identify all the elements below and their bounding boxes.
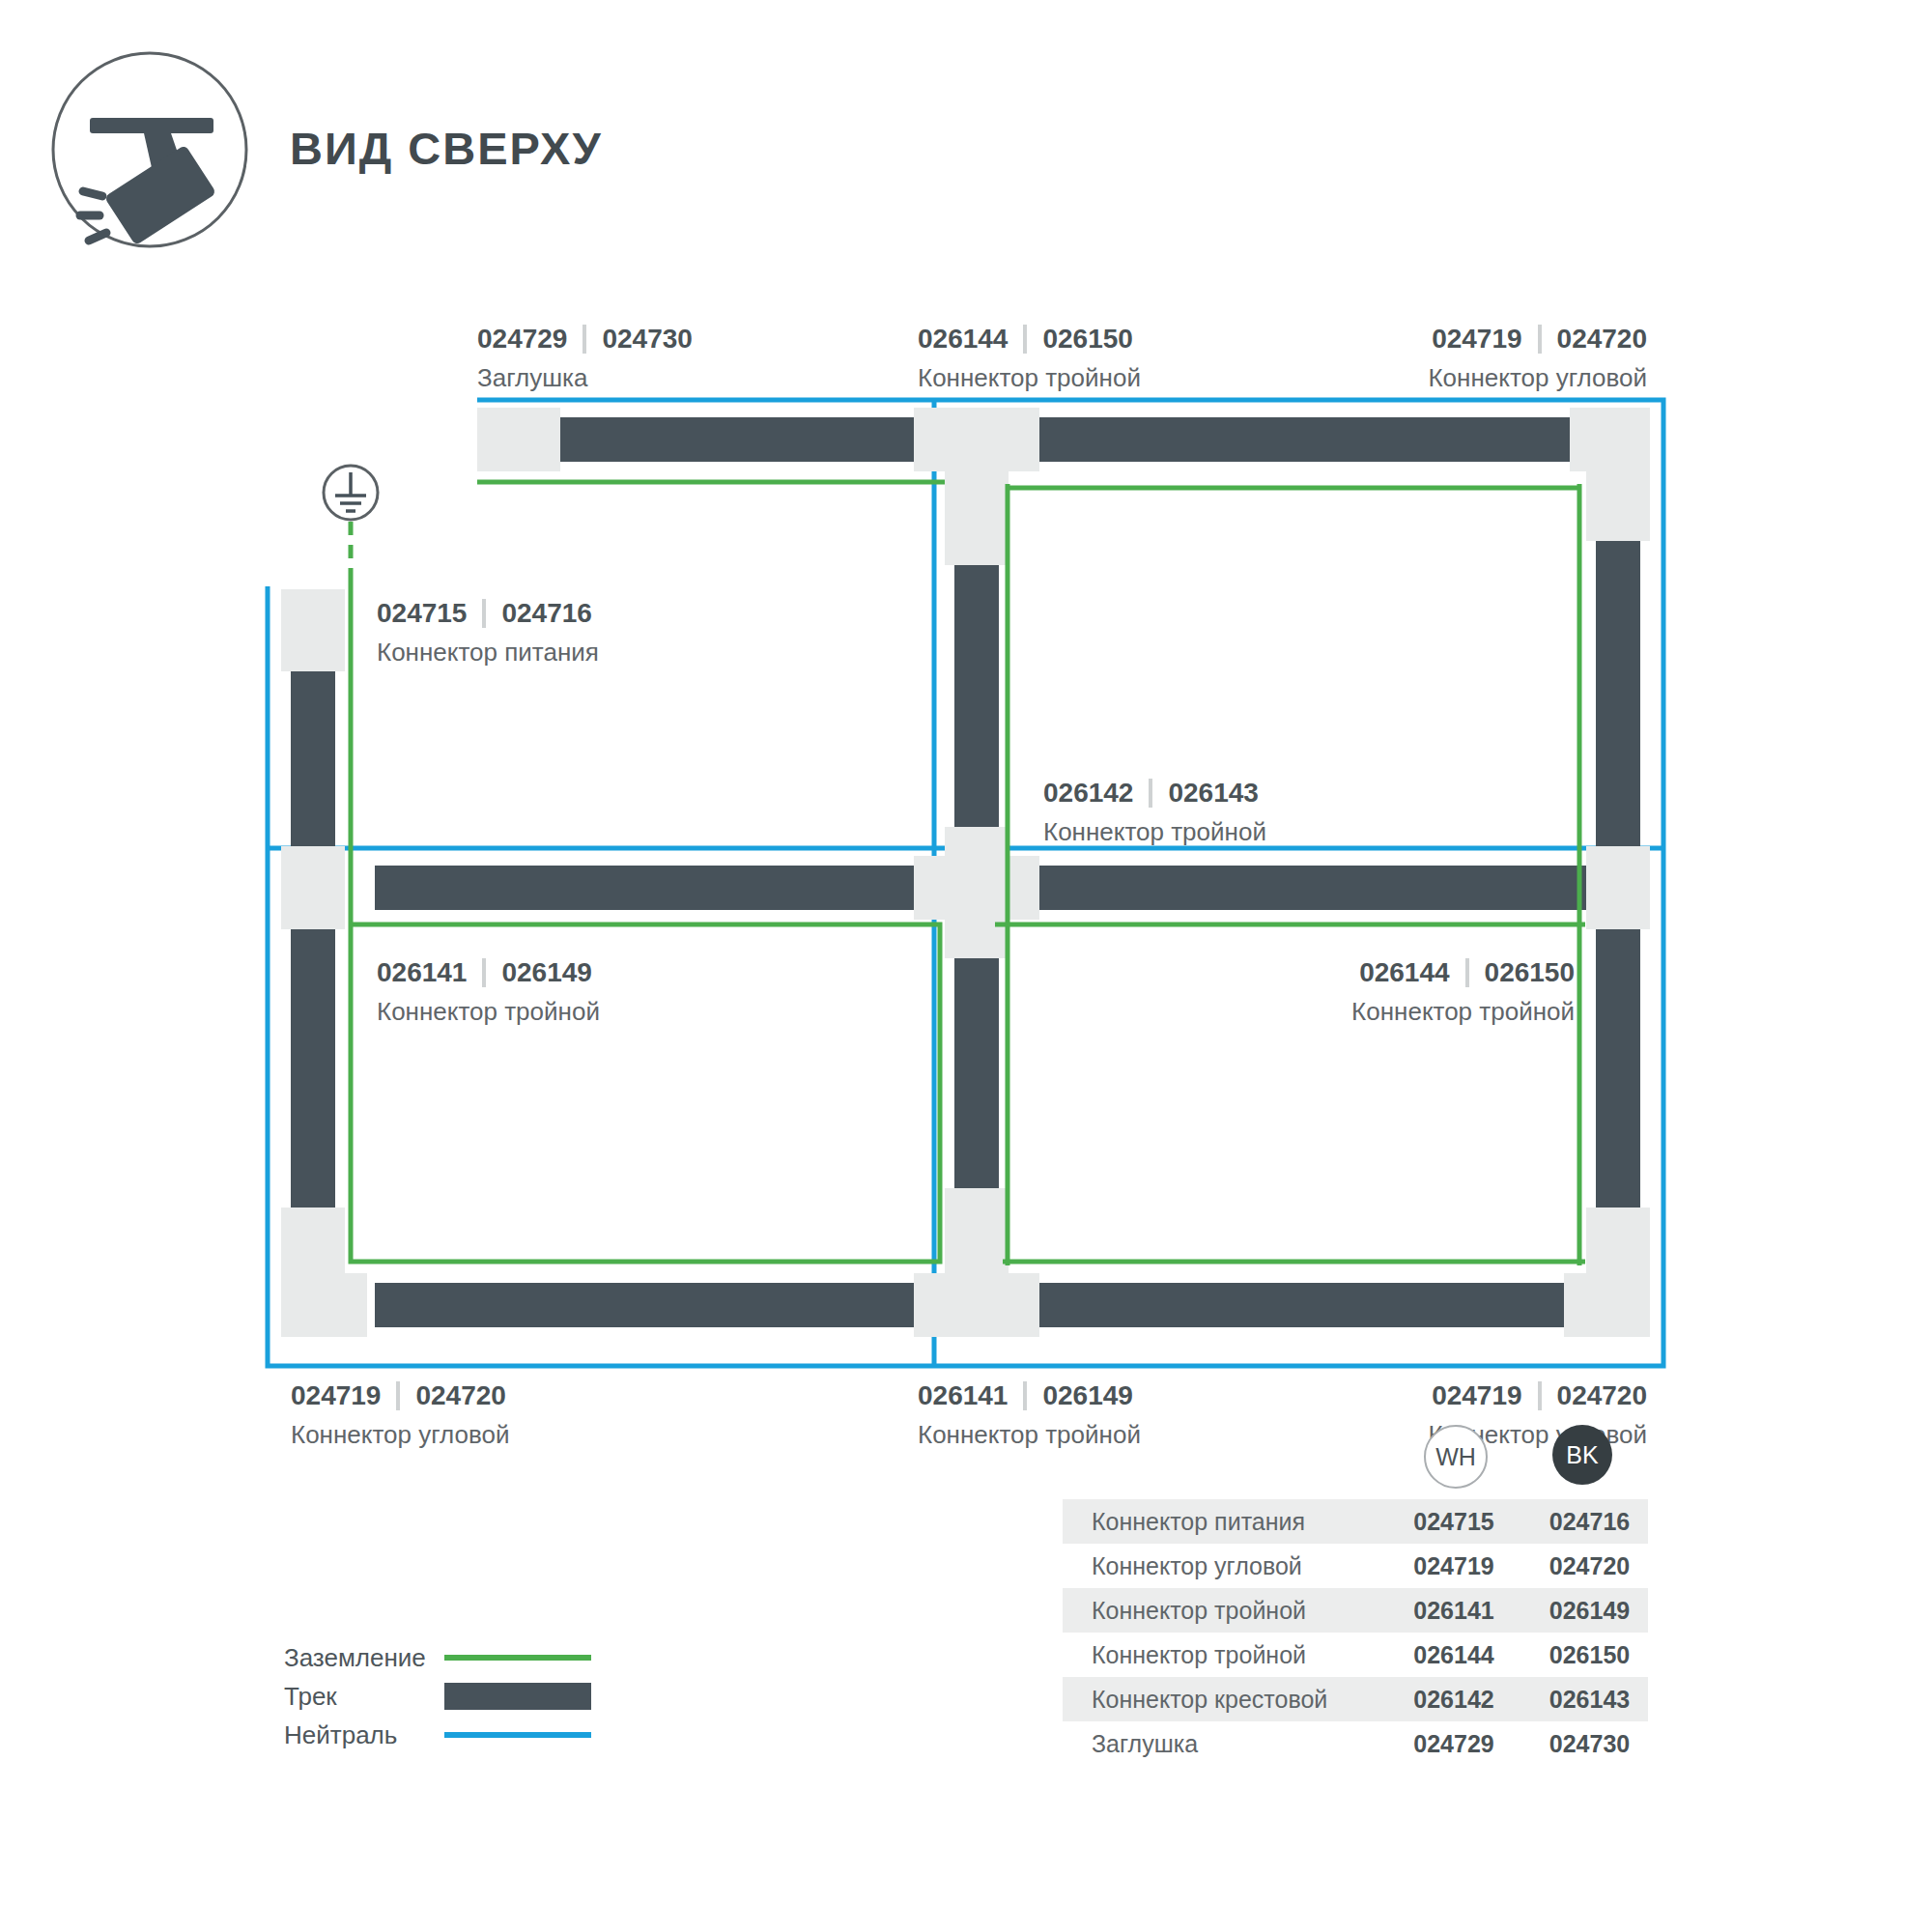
callout-corner-top-right: 024719024720 Коннектор угловой <box>1428 325 1647 392</box>
callout-corner-bottom-left: 024719024720 Коннектор угловой <box>291 1381 510 1449</box>
row-name: Заглушка <box>1063 1730 1377 1758</box>
track-spotlight-icon <box>53 53 246 246</box>
code-divider <box>582 325 586 354</box>
code-wh: 024719 <box>1432 326 1521 353</box>
part-codes: 024719024720 <box>291 1381 510 1410</box>
column-badge-black: BK <box>1552 1425 1612 1485</box>
part-name: Коннектор угловой <box>291 1421 510 1449</box>
code-divider <box>482 599 486 628</box>
row-name: Коннектор крестовой <box>1063 1686 1377 1714</box>
callout-t-connector-top: 026144026150 Коннектор тройной <box>918 325 1141 392</box>
part-codes: 024719024720 <box>1428 325 1647 354</box>
legend-label: Нейтраль <box>284 1720 444 1750</box>
part-name: Коннектор тройной <box>918 364 1141 392</box>
code-wh: 026144 <box>1359 959 1449 986</box>
part-name: Коннектор тройной <box>918 1421 1141 1449</box>
code-wh: 026141 <box>918 1382 1008 1409</box>
row-name: Коннектор угловой <box>1063 1552 1377 1580</box>
code-bk: 026143 <box>1168 780 1258 807</box>
row-code-wh: 024715 <box>1377 1508 1531 1536</box>
part-codes: 024715024716 <box>377 599 599 628</box>
ground-line-swatch <box>444 1655 591 1661</box>
code-divider <box>1149 779 1152 808</box>
code-divider <box>1023 1381 1027 1410</box>
row-code-bk: 024720 <box>1531 1552 1648 1580</box>
legend-item-neutral: Нейтраль <box>284 1721 591 1748</box>
row-code-wh: 024719 <box>1377 1552 1531 1580</box>
parts-table: Коннектор питания 024715 024716 Коннекто… <box>1063 1499 1648 1766</box>
legend-label: Трек <box>284 1682 444 1712</box>
row-code-bk: 026150 <box>1531 1641 1648 1669</box>
legend-item-ground: Заземление <box>284 1644 591 1671</box>
legend: Заземление Трек Нейтраль <box>284 1644 591 1748</box>
row-code-bk: 024730 <box>1531 1730 1648 1758</box>
code-bk: 026150 <box>1485 959 1575 986</box>
table-row: Коннектор крестовой 026142 026143 <box>1063 1677 1648 1721</box>
table-row: Заглушка 024729 024730 <box>1063 1721 1648 1766</box>
code-bk: 026149 <box>501 959 591 986</box>
part-codes: 024729024730 <box>477 325 693 354</box>
code-wh: 024719 <box>1432 1382 1521 1409</box>
row-code-bk: 026149 <box>1531 1597 1648 1625</box>
part-name: Коннектор тройной <box>1351 998 1575 1026</box>
part-name: Коннектор тройной <box>1043 818 1266 846</box>
code-bk: 024720 <box>1557 1382 1647 1409</box>
code-bk: 026149 <box>1042 1382 1132 1409</box>
legend-label: Заземление <box>284 1643 444 1673</box>
part-name: Коннектор питания <box>377 639 599 667</box>
table-row: Коннектор тройной 026141 026149 <box>1063 1588 1648 1633</box>
part-codes: 026142026143 <box>1043 779 1266 808</box>
row-code-wh: 026141 <box>1377 1597 1531 1625</box>
code-divider <box>396 1381 400 1410</box>
code-bk: 024720 <box>415 1382 505 1409</box>
row-code-wh: 026142 <box>1377 1686 1531 1714</box>
page: { "header": { "title": "ВИД СВЕРХУ", "ic… <box>0 0 1932 1932</box>
row-name: Коннектор питания <box>1063 1508 1377 1536</box>
code-bk: 024716 <box>501 600 591 627</box>
part-codes: 026144026150 <box>1351 958 1575 987</box>
table-row: Коннектор питания 024715 024716 <box>1063 1499 1648 1544</box>
code-divider <box>482 958 486 987</box>
part-name: Коннектор угловой <box>1428 364 1647 392</box>
track-bar-swatch <box>444 1683 591 1710</box>
callout-t-connector-bottom: 026141026149 Коннектор тройной <box>918 1381 1141 1449</box>
callout-end-cap-top: 024729024730 Заглушка <box>477 325 693 392</box>
row-code-bk: 026143 <box>1531 1686 1648 1714</box>
part-name: Коннектор тройной <box>377 998 600 1026</box>
code-bk: 026150 <box>1042 326 1132 353</box>
code-wh: 026144 <box>918 326 1008 353</box>
part-codes: 024719024720 <box>1428 1381 1647 1410</box>
callout-power-connector: 024715024716 Коннектор питания <box>377 599 599 667</box>
code-divider <box>1538 1381 1542 1410</box>
code-wh: 024715 <box>377 600 467 627</box>
part-codes: 026141026149 <box>918 1381 1141 1410</box>
code-divider <box>1023 325 1027 354</box>
row-name: Коннектор тройной <box>1063 1597 1377 1625</box>
code-divider <box>1538 325 1542 354</box>
table-row: Коннектор угловой 024719 024720 <box>1063 1544 1648 1588</box>
row-code-wh: 026144 <box>1377 1641 1531 1669</box>
legend-item-track: Трек <box>284 1683 591 1710</box>
row-code-wh: 024729 <box>1377 1730 1531 1758</box>
code-divider <box>1465 958 1469 987</box>
row-name: Коннектор тройной <box>1063 1641 1377 1669</box>
code-bk: 024720 <box>1557 326 1647 353</box>
part-name: Заглушка <box>477 364 693 392</box>
page-title: ВИД СВЕРХУ <box>290 122 603 175</box>
code-bk: 024730 <box>602 326 692 353</box>
part-codes: 026141026149 <box>377 958 600 987</box>
table-row: Коннектор тройной 026144 026150 <box>1063 1633 1648 1677</box>
row-code-bk: 024716 <box>1531 1508 1648 1536</box>
column-badge-white: WH <box>1424 1425 1488 1489</box>
code-wh: 024729 <box>477 326 567 353</box>
code-wh: 026142 <box>1043 780 1133 807</box>
callout-t-connector-right: 026144026150 Коннектор тройной <box>1351 958 1575 1026</box>
code-wh: 024719 <box>291 1382 381 1409</box>
callout-t-connector-left: 026141026149 Коннектор тройной <box>377 958 600 1026</box>
earth-ground-icon <box>324 466 378 520</box>
neutral-line-swatch <box>444 1732 591 1738</box>
callout-cross-connector: 026142026143 Коннектор тройной <box>1043 779 1266 846</box>
code-wh: 026141 <box>377 959 467 986</box>
part-codes: 026144026150 <box>918 325 1141 354</box>
